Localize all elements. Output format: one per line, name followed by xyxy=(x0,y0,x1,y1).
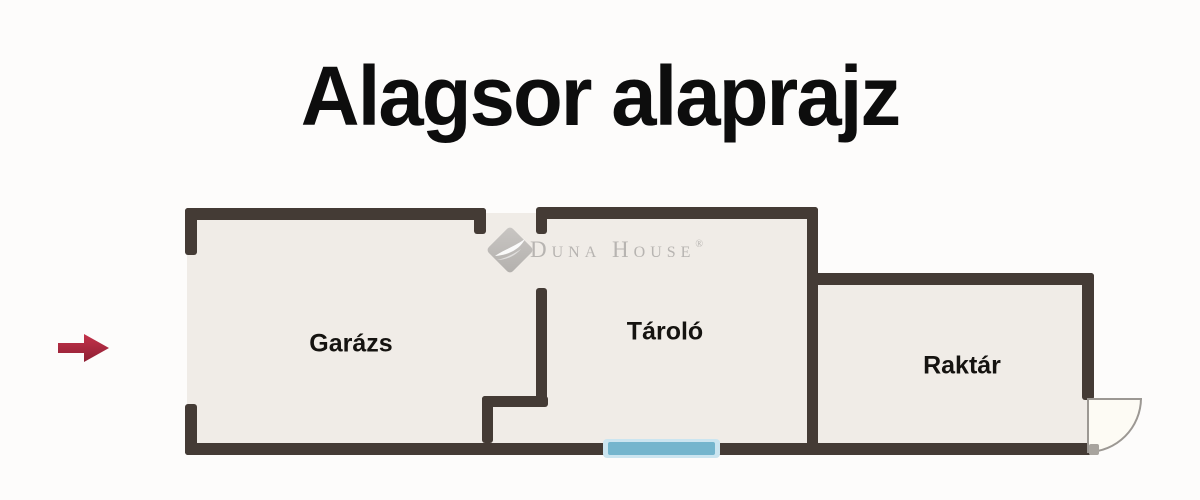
wall-partition-storage-warehouse xyxy=(807,207,818,455)
duna-house-diamond-icon xyxy=(484,224,536,276)
room-label-storage: Tároló xyxy=(627,318,703,347)
wall-warehouse-top xyxy=(807,273,1094,285)
wall-warehouse-right xyxy=(1082,273,1094,400)
duna-house-watermark: Duna House® xyxy=(484,224,784,276)
wall-partition-garage-storage xyxy=(536,288,547,407)
wall-left-upper xyxy=(185,208,197,255)
door-threshold xyxy=(1089,444,1099,455)
room-label-garage: Garázs xyxy=(309,330,392,359)
floorplan-page: Alagsor alaprajz Garázs Tároló Raktár xyxy=(0,0,1200,500)
wall-garage-top xyxy=(185,208,486,220)
right-arrow-icon xyxy=(58,333,110,363)
room-label-warehouse: Raktár xyxy=(923,352,1001,381)
window-marker xyxy=(608,442,715,455)
duna-house-brand-text: Duna House® xyxy=(530,238,703,261)
page-title: Alagsor alaprajz xyxy=(18,54,1182,138)
registered-mark: ® xyxy=(695,239,703,250)
wall-storage-top xyxy=(536,207,818,219)
